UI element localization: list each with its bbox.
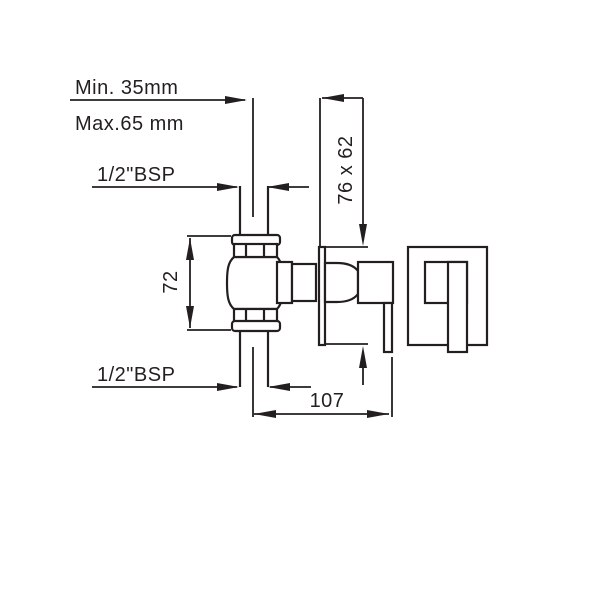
- arrowhead-right: [217, 383, 239, 391]
- arrowhead-up: [186, 238, 194, 260]
- top-pipe: [240, 186, 268, 236]
- top-hex-nut: [234, 244, 277, 257]
- arrowhead-left: [267, 183, 289, 191]
- arrowhead-left: [322, 94, 344, 102]
- technical-drawing: Min. 35mm Max.65 mm 1/2"BSP 1/2"BSP 72 7…: [0, 0, 600, 600]
- handle-block-side: [358, 262, 393, 303]
- handle-front-view: [408, 247, 487, 352]
- arrowhead-right: [367, 410, 389, 418]
- arrowhead-down: [359, 224, 367, 246]
- bottom-pipe: [240, 331, 268, 387]
- arrowhead-down: [186, 306, 194, 328]
- bottom-flange: [232, 321, 280, 331]
- valve-body: [227, 235, 316, 331]
- label-top-thread: 1/2"BSP: [97, 164, 175, 186]
- arrowhead-right: [225, 96, 247, 104]
- drawing-svg: Min. 35mm Max.65 mm 1/2"BSP 1/2"BSP 72 7…: [0, 0, 600, 600]
- handle-lever-side: [384, 303, 392, 352]
- dimension-body-height: [186, 236, 231, 330]
- outlet-neck: [277, 262, 292, 303]
- label-projection: 107: [310, 390, 345, 412]
- label-max-depth: Max.65 mm: [75, 113, 184, 135]
- label-min-depth: Min. 35mm: [75, 77, 178, 99]
- handle-side-view: [325, 262, 393, 352]
- valve-barrel: [227, 257, 283, 309]
- label-body-height: 72: [160, 270, 182, 293]
- handle-dome-side: [325, 263, 358, 302]
- cartridge-housing: [292, 264, 316, 301]
- arrowhead-up: [359, 346, 367, 368]
- label-plate-size: 76 x 62: [335, 135, 357, 204]
- arrowhead-left: [268, 383, 290, 391]
- handle-lever-front: [448, 262, 467, 352]
- label-bottom-thread: 1/2"BSP: [97, 364, 175, 386]
- arrowhead-left: [254, 410, 276, 418]
- arrowhead-right: [217, 183, 239, 191]
